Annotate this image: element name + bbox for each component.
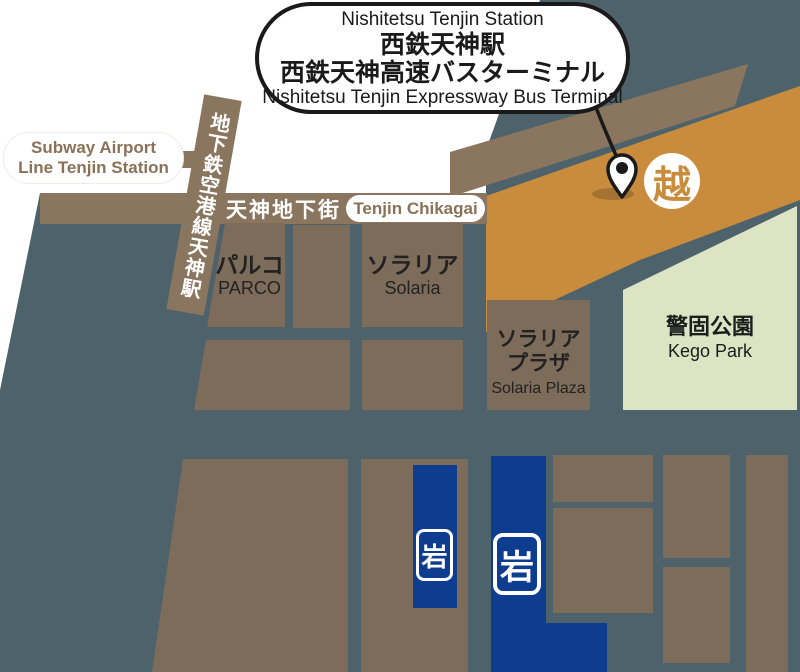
chikagai-label-en-pill: Tenjin Chikagai: [346, 195, 485, 222]
subway-pill-line2: Line Tenjin Station: [18, 158, 169, 178]
iwataya-logo: 岩: [493, 533, 541, 595]
parco-label-jp: パルコ: [215, 252, 284, 278]
callout-subtitle-en: Nishitetsu Tenjin Expressway Bus Termina…: [259, 87, 626, 109]
station-callout-bubble: Nishitetsu Tenjin Station 西鉄天神駅 西鉄天神高速バス…: [255, 2, 630, 114]
iwataya-logo-glyph: 岩: [500, 540, 534, 589]
callout-line1-jp: 西鉄天神駅: [259, 31, 626, 59]
building-unnamed-6: [553, 455, 653, 502]
subway-station-pill: Subway Airport Line Tenjin Station: [3, 132, 184, 184]
solaria-plaza-label-en: Solaria Plaza: [491, 379, 585, 398]
callout-line2-jp: 西鉄天神高速バスターミナル: [259, 59, 626, 87]
building-unnamed-7: [553, 508, 653, 613]
subway-pill-line1: Subway Airport: [31, 138, 156, 158]
building-unnamed-10: [746, 455, 788, 672]
building-unnamed-2: [194, 340, 350, 410]
chikagai-label-jp: 天神地下街: [226, 194, 341, 224]
iwataya-logo-glyph: 岩: [421, 537, 447, 574]
solaria-label-jp: ソラリア: [367, 252, 459, 278]
building-solaria-plaza: ソラリア プラザ Solaria Plaza: [487, 300, 590, 410]
building-unnamed-3: [362, 340, 463, 410]
solaria-label-en: Solaria: [384, 278, 440, 299]
iwataya-logo: 岩: [416, 529, 453, 581]
building-unnamed-8: [663, 455, 730, 558]
tenjin-chikagai-road: 天神地下街 Tenjin Chikagai: [40, 193, 487, 224]
parco-label-en: PARCO: [218, 278, 281, 299]
building-unnamed-9: [663, 567, 730, 663]
iwataya-main-block-extension: [546, 623, 607, 672]
mitsukoshi-logo-glyph: 越: [653, 154, 691, 209]
kego-park-label-en: Kego Park: [668, 341, 752, 362]
building-unnamed-1: [293, 225, 350, 328]
building-solaria: ソラリア Solaria: [362, 223, 463, 327]
solaria-plaza-label-jp1: ソラリア: [497, 328, 581, 352]
tenjin-access-map: 天神地下街 Tenjin Chikagai 地下鉄空港線天神駅 Subway A…: [0, 0, 800, 672]
kego-park-label-jp: 警固公園: [666, 314, 754, 339]
solaria-plaza-label-jp2: プラザ: [507, 352, 570, 376]
callout-title-en: Nishitetsu Tenjin Station: [259, 9, 626, 31]
mitsukoshi-logo: 越: [644, 153, 700, 209]
building-unnamed-4: [152, 459, 348, 672]
